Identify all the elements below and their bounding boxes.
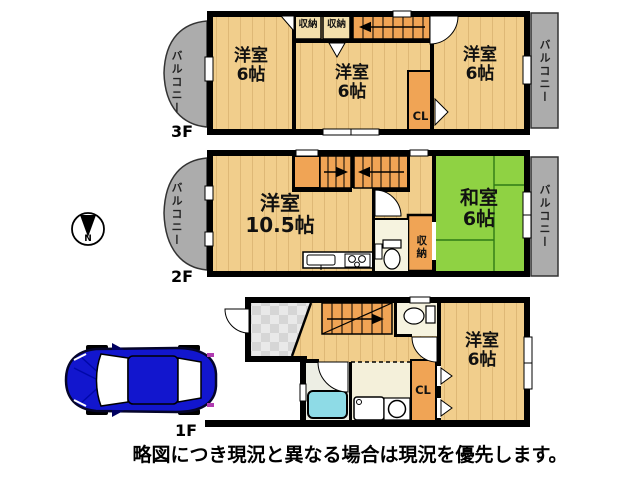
exterior-void-1f bbox=[251, 362, 301, 421]
stairs-1f bbox=[322, 303, 392, 334]
storage-2f-box bbox=[408, 215, 434, 271]
storage-3f-2-box bbox=[323, 14, 350, 39]
floorplan-canvas: バルコニー バルコニー 洋室 6帖 洋室 6帖 洋室 6帖 収納 収納 CL 3… bbox=[0, 0, 640, 480]
car-icon bbox=[66, 343, 216, 417]
floorplan-graphics bbox=[0, 0, 640, 480]
storage-3f-1-box bbox=[295, 14, 321, 39]
floor-2f bbox=[164, 150, 558, 277]
door-arc-1f-entrance bbox=[225, 309, 249, 333]
closet-1f-box bbox=[411, 360, 436, 421]
closet-opening-1f-a bbox=[437, 366, 441, 386]
floor-1f bbox=[205, 297, 532, 427]
balcony-3f-right-shape bbox=[531, 13, 558, 128]
tatami-room-2f bbox=[434, 156, 524, 271]
balcony-3f-left-shape bbox=[164, 21, 207, 127]
toilet-room-1f bbox=[397, 303, 437, 336]
balcony-2f-right-shape bbox=[531, 157, 558, 276]
closet-opening-1f-b bbox=[437, 398, 441, 418]
balcony-2f-left-shape bbox=[164, 158, 207, 270]
compass-icon bbox=[72, 213, 104, 245]
toilet-room-2f bbox=[375, 220, 408, 271]
floor-3f bbox=[164, 11, 558, 135]
wash-basin-icon bbox=[384, 398, 410, 420]
stairs-3f bbox=[353, 14, 430, 39]
closet-3f-box bbox=[408, 71, 433, 133]
fusuma-opening-2f bbox=[432, 222, 436, 260]
kitchen-2f bbox=[303, 252, 373, 270]
bathtub-icon bbox=[308, 391, 347, 418]
washing-machine-icon bbox=[354, 397, 384, 424]
